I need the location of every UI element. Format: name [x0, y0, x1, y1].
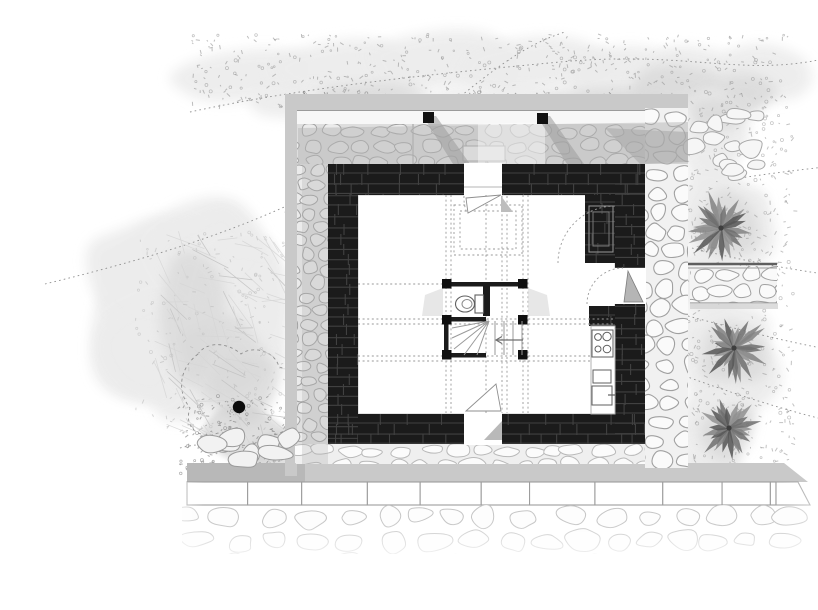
- floor-plan-drawing: [40, 16, 818, 594]
- tree-trunk-marker: [233, 401, 245, 413]
- kitchen: [591, 326, 615, 414]
- courtyard-post: [423, 112, 434, 123]
- courtyard-post: [537, 113, 548, 124]
- ground-bands-bottom: [187, 463, 810, 505]
- entry-door-top-opening: [464, 163, 502, 196]
- wc-toilet: [456, 295, 484, 313]
- plan-svg: [40, 16, 818, 594]
